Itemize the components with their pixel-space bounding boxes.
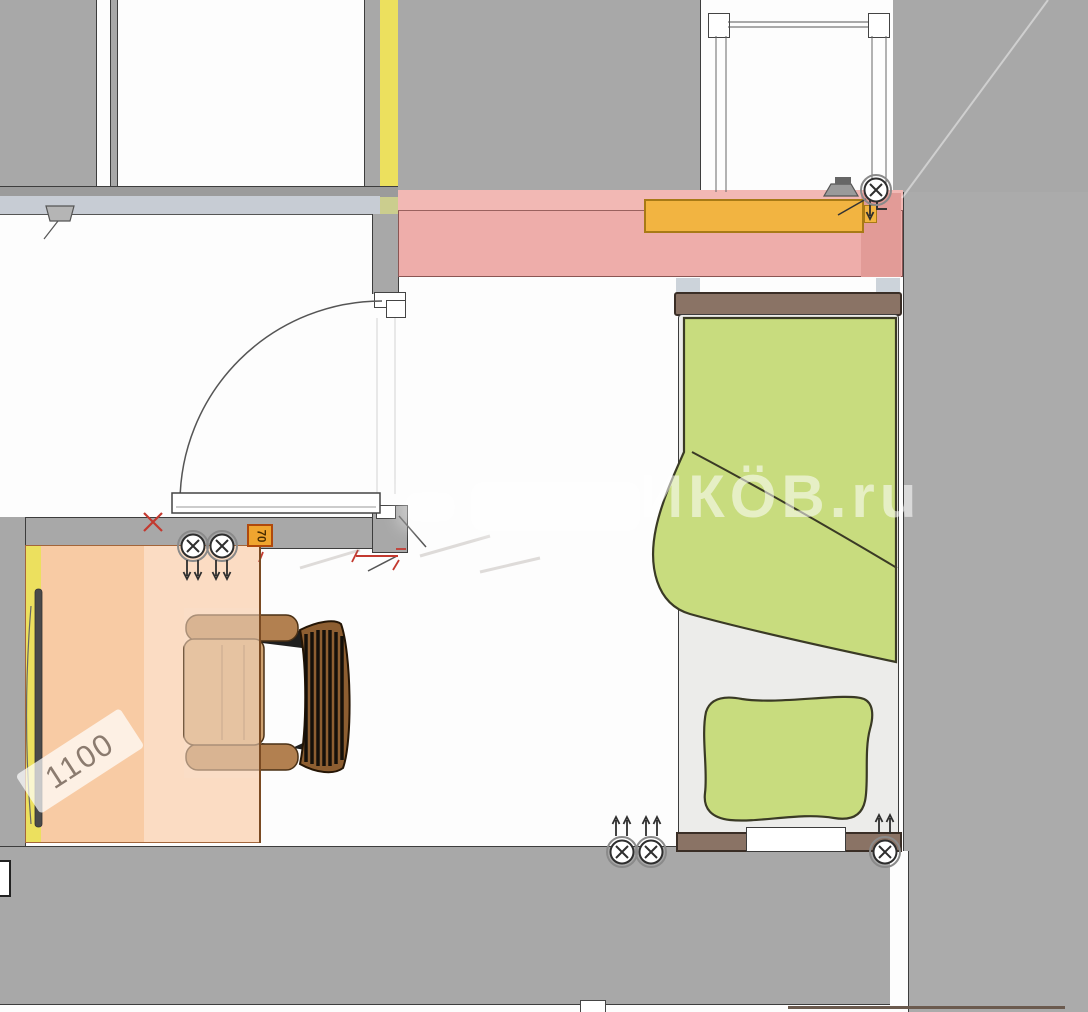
spot-size-text: 70 <box>254 529 266 542</box>
pencil-scribbles <box>300 536 540 572</box>
watermark-text: ИКÖВ.ru <box>640 463 921 530</box>
wall-diagonal-scratch <box>902 0 1048 198</box>
spot-size-label: 70 <box>247 524 273 547</box>
door-swing <box>172 301 395 513</box>
bed-pillow <box>704 697 872 821</box>
watermark-blur-small <box>398 485 462 529</box>
door-handle-icon <box>44 206 74 239</box>
watermark-blur-large <box>468 479 643 534</box>
vent-icon <box>824 177 866 215</box>
desk-right-edge <box>259 545 261 843</box>
chair-back-slats <box>306 630 342 766</box>
desk-transparency-overlay <box>184 608 261 778</box>
floor-plan: 1100 70 ИКÖВ.ru <box>0 0 1088 1012</box>
window-icon <box>716 22 886 192</box>
watermark: ИКÖВ.ru <box>640 462 921 531</box>
